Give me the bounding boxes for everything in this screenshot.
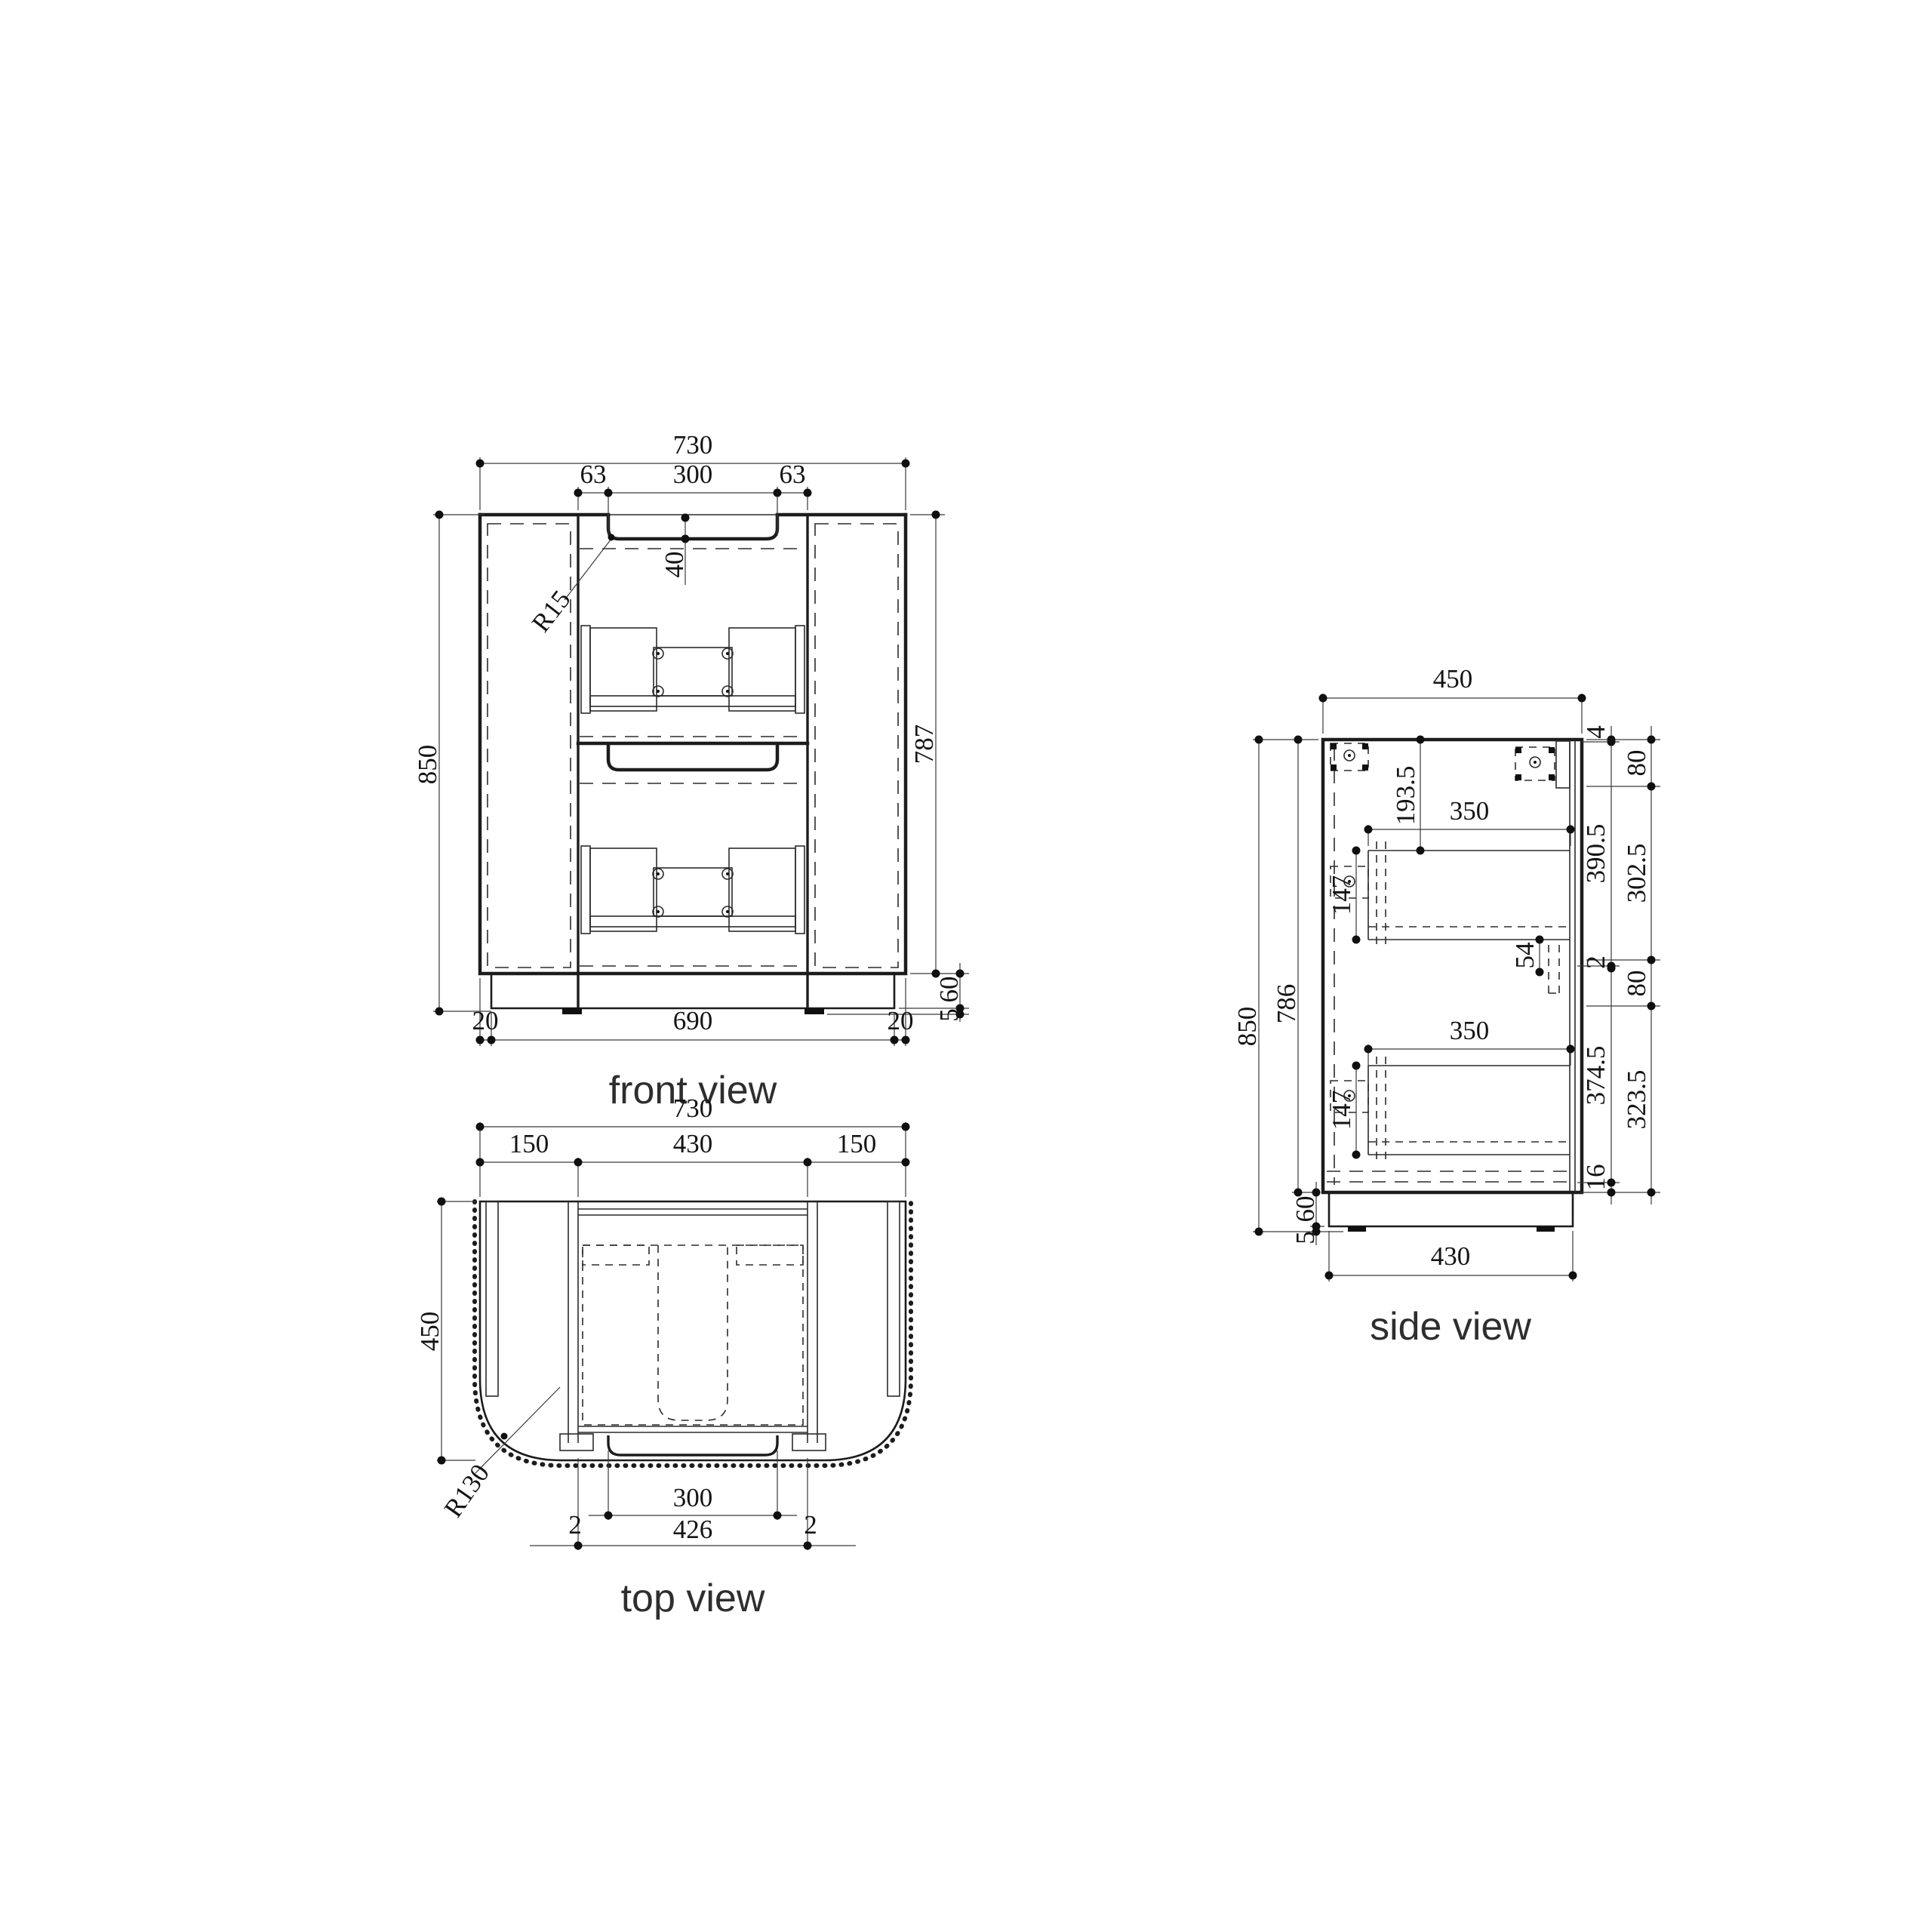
front-view-dimensions: 730 63 300 63 40 R15 850 787 60 5 20 690… [413,430,969,1046]
top-view-dimensions: 730 150 430 150 450 R130 300 426 2 2 [415,1094,910,1550]
side-dim-drawer2-height: 147 [1327,1091,1356,1131]
top-dim-corner-radius: R130 [438,1459,495,1523]
drawer2-strip-right [795,846,804,934]
side-chain-outer-3: 323.5 [1622,1070,1651,1130]
top-dim-clearance-left: 2 [568,1510,582,1540]
top-dim-depth: 450 [415,1312,445,1352]
front-dim-recess-offset-left: 63 [580,460,607,489]
side-chain-inner-2: 2 [1581,955,1611,969]
side-dim-feet-height: 5 [1291,1231,1320,1244]
top-dim-overall-width: 730 [673,1094,713,1123]
front-view: 730 63 300 63 40 R15 850 787 60 5 20 690… [413,430,969,1112]
drawer2-center-bracket [654,868,732,916]
front-handle-recess-bottom [608,745,777,770]
front-dim-recess-width: 300 [673,460,713,489]
drawing-page: 730 63 300 63 40 R15 850 787 60 5 20 690… [0,0,1932,1932]
side-dim-overall-height: 850 [1232,1007,1262,1047]
drawer2-panel-left [590,848,657,931]
front-extension-lines [433,457,969,1046]
front-drawer-hidden-lines [580,549,806,966]
top-sink-bowl-hidden [658,1245,728,1420]
top-dim-clearance-right: 2 [804,1510,817,1540]
front-drawer2-assembly [581,846,804,934]
cad-technical-drawing: 730 63 300 63 40 R15 850 787 60 5 20 690… [0,0,1932,1932]
front-dim-overall-width: 730 [673,430,713,460]
front-dim-plinth-height: 60 [934,977,964,1003]
side-dim-drawer1-depth: 350 [1450,796,1490,826]
side-chain-inner-0: 4 [1581,725,1611,739]
drawer1-panel-left [590,628,657,711]
side-back-panel [1570,740,1575,1192]
drawer1-strip-right [795,626,804,713]
front-plinth [491,974,894,1008]
front-dim-recess-depth: 40 [660,552,689,578]
side-drawer2-profile [1331,1057,1570,1164]
side-chain-inner-3: 374.5 [1581,1046,1611,1106]
top-extension-lines [437,1122,906,1550]
front-dim-base-width: 690 [673,1006,713,1035]
side-bracket-top-right [1515,747,1555,780]
front-dim-recess-radius: R15 [526,585,577,638]
drawer2-screws [653,869,733,917]
side-dim-drawer1-height: 147 [1327,875,1356,915]
front-dim-overall-height: 850 [413,745,442,785]
top-dim-drawer-width: 426 [673,1515,713,1544]
front-dimension-lines [439,463,960,1040]
top-left-panel-edge [486,1201,498,1396]
side-foot-front [1537,1226,1555,1232]
drawer2-strip-left [581,846,590,934]
top-right-panel-edge [888,1201,900,1396]
front-dim-feet-height: 5 [934,1008,964,1022]
side-mid-rail-hidden [1549,945,1559,993]
top-door-endcap-left [560,1434,593,1451]
front-dim-base-inset-left: 20 [472,1006,499,1035]
top-door-endcap-right [792,1434,826,1451]
front-drawer1-assembly [581,626,804,713]
front-door-edges [578,515,808,1008]
drawer1-screws [653,648,733,697]
top-drawer-hidden [583,1245,803,1425]
drawer1-rail [590,696,795,706]
top-dim-front-lip-width: 300 [673,1483,713,1512]
side-view-title: side view [1370,1305,1531,1349]
top-front-rail [578,1426,808,1432]
side-plinth [1329,1192,1573,1226]
side-dim-top-to-drawer1: 193.5 [1391,766,1420,826]
top-dim-side-panel-right: 150 [837,1129,877,1158]
side-dim-body-height: 786 [1272,984,1301,1024]
side-drawer1-profile [1331,841,1570,949]
side-view: 450 850 786 60 5 430 193.5 350 147 54 35… [1232,664,1660,1349]
side-dim-drawer2-depth: 350 [1450,1016,1490,1045]
side-view-dimensions: 450 850 786 60 5 430 193.5 350 147 54 35… [1232,664,1660,1281]
side-chain-inner-1: 390.5 [1581,824,1611,884]
side-bottom-panel-hidden [1327,1171,1570,1182]
side-top-rail [1556,741,1570,788]
front-foot-right [804,1008,824,1014]
side-chain-outer-2: 80 [1622,971,1651,997]
drawer1-strip-left [581,626,590,713]
side-chain-inner-4: 16 [1581,1164,1611,1191]
side-dim-bottom-depth: 430 [1431,1241,1471,1271]
front-view-geometry [480,515,906,1014]
top-sink-bracket-left [583,1245,649,1265]
side-dim-rail-gap: 54 [1510,943,1540,969]
front-foot-left [562,1008,582,1014]
front-dim-base-inset-right: 20 [888,1006,914,1035]
front-dim-recess-offset-right: 63 [780,460,806,489]
top-view-title: top view [621,1577,765,1620]
side-chain-outer-1: 302.5 [1622,844,1651,903]
drawer1-panel-right [729,628,795,711]
side-dim-top-depth: 450 [1433,664,1473,694]
drawer2-panel-right [729,848,795,931]
drawer2-rail [590,916,795,927]
top-view-geometry [475,1201,911,1466]
top-dim-side-panel-left: 150 [509,1129,549,1158]
front-dim-dots [435,460,964,1044]
front-right-door-hidden [815,524,898,968]
top-door-divider-lines [568,1201,817,1443]
side-bracket-top-left [1331,743,1368,771]
top-dim-center-width: 430 [673,1129,713,1158]
top-outline [480,1201,906,1460]
drawer1-center-bracket [654,648,732,696]
side-foot-back [1348,1226,1366,1232]
front-handle-recess-top [608,516,777,539]
top-view: 730 150 430 150 450 R130 300 426 2 2 top… [415,1094,911,1620]
front-radius-leader [565,539,611,600]
side-chain-outer-0: 80 [1622,750,1651,777]
top-sink-bracket-right [737,1245,803,1265]
front-dim-body-height: 787 [909,724,939,764]
top-front-lip [608,1435,777,1455]
top-back-rail [578,1209,808,1215]
side-dim-plinth-height: 60 [1291,1196,1320,1223]
